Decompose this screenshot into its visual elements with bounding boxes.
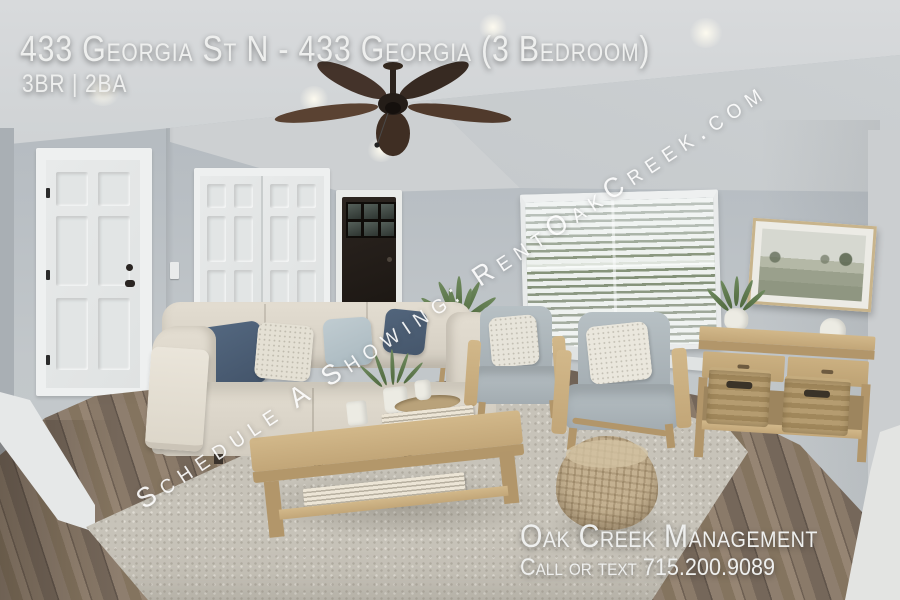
wall-art [747, 218, 877, 312]
door-panel [56, 298, 88, 370]
door-hinge [46, 355, 50, 365]
company-name: Oak Creek Management [520, 518, 818, 555]
door-handle [125, 280, 135, 287]
front-door [342, 197, 396, 311]
entry-door [46, 160, 140, 388]
decor-candle [346, 400, 368, 426]
recessed-light [688, 18, 724, 48]
closet-door-right [263, 176, 324, 316]
contact-phone: Call or text 715.200.9089 [520, 554, 775, 582]
door-hinge [46, 270, 50, 280]
closet-door-left [200, 176, 263, 316]
armchair [548, 306, 700, 442]
door-panel [56, 216, 88, 286]
door-panel [98, 172, 130, 206]
light-switch [170, 262, 179, 279]
coffee-table [242, 338, 534, 541]
door-panel [98, 216, 130, 286]
decor-candle [414, 379, 432, 401]
wall-art-print [758, 228, 866, 301]
front-door-knob [387, 257, 392, 262]
door-deadbolt [126, 264, 133, 271]
throw-pillow [585, 321, 653, 385]
door-hinge [46, 188, 50, 198]
pouf-ottoman [556, 436, 658, 530]
storage-basket [782, 375, 851, 436]
listing-title: 433 Georgia St N - 433 Georgia (3 Bedroo… [20, 28, 650, 70]
console-table [691, 324, 879, 475]
listing-photo: 433 Georgia St N - 433 Georgia (3 Bedroo… [0, 0, 900, 600]
front-door-window [346, 202, 396, 238]
throw-blanket [145, 346, 210, 452]
listing-specs: 3BR | 2BA [22, 70, 127, 99]
door-panel [56, 172, 88, 206]
storage-basket [706, 367, 771, 428]
door-panel [98, 298, 130, 370]
